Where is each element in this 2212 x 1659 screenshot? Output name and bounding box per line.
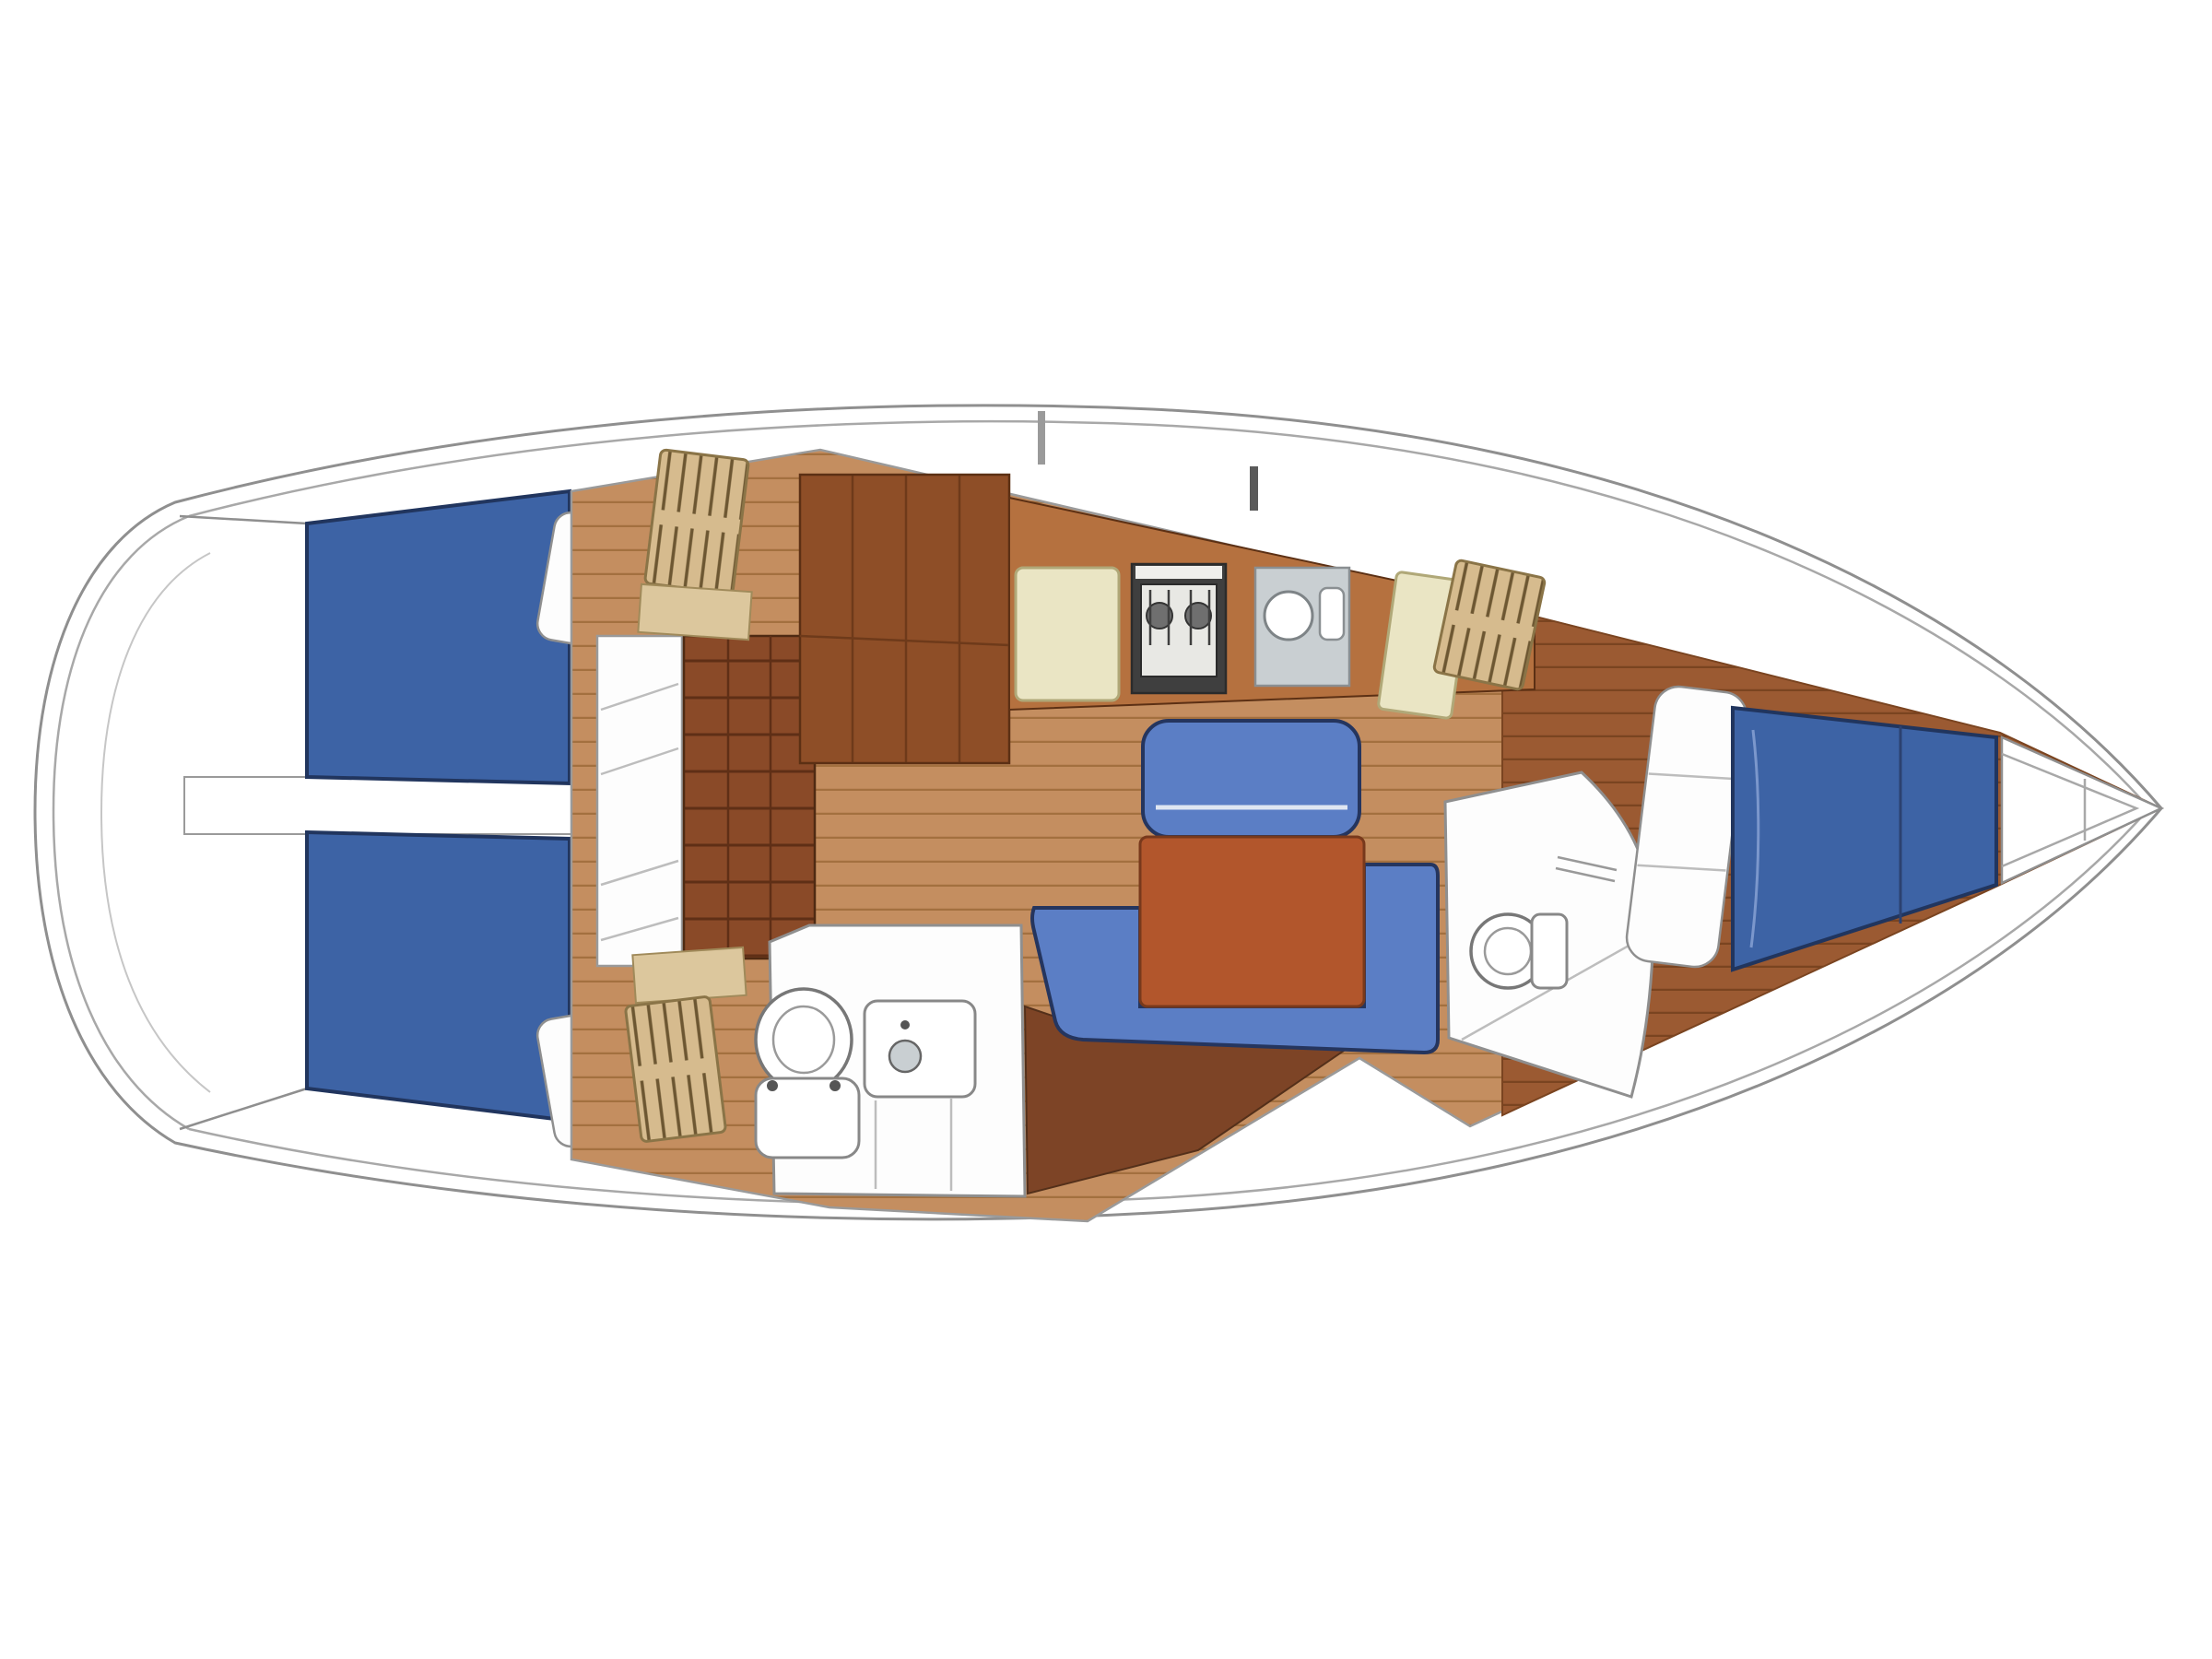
galley-sink-unit xyxy=(1255,568,1349,686)
companionway-ladder xyxy=(684,636,815,959)
forward-head xyxy=(1445,772,1653,1097)
locker-shelf-band-bottom xyxy=(632,947,746,1003)
hanging-locker-aft-bottom xyxy=(625,996,725,1142)
aft-head-sink-bowl xyxy=(889,1041,921,1072)
aft-berth-bottom-mattress xyxy=(307,832,570,1121)
forward-head-toilet xyxy=(1471,914,1567,988)
galley-stove xyxy=(1132,564,1226,693)
aft-berth-top-mattress xyxy=(307,491,570,783)
aft-walkway xyxy=(184,777,594,834)
saloon-table xyxy=(1140,837,1364,1006)
hanging-locker-aft-top xyxy=(644,450,748,594)
galley-icebox-lid xyxy=(1016,568,1119,700)
aft-head-sink xyxy=(865,1001,975,1097)
sink-drainer xyxy=(1320,588,1344,640)
stove-burner xyxy=(1185,603,1211,629)
companionway-corridor xyxy=(597,636,682,966)
mast-post-mark xyxy=(1038,411,1045,465)
galley-bulkhead-cabinet xyxy=(800,475,1009,763)
aft-head xyxy=(756,925,1025,1196)
sink-bowl xyxy=(1265,592,1312,640)
stove-back-band xyxy=(1135,566,1222,579)
companionway xyxy=(597,636,815,966)
locker-shelf-band-top xyxy=(638,584,751,640)
compression-post-mark xyxy=(1250,466,1258,511)
saloon-bench xyxy=(1143,721,1359,837)
floor-plan-canvas xyxy=(0,0,2212,1659)
